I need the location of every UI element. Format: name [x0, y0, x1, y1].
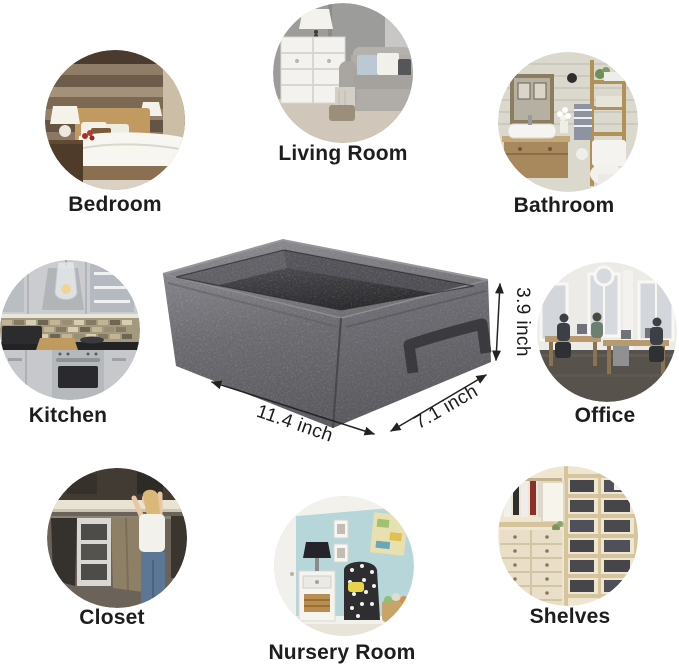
nursery-room-photo	[274, 496, 414, 636]
pendant-light-icon	[55, 260, 77, 300]
round-window-icon	[595, 267, 613, 285]
nightstand-icon	[299, 571, 335, 621]
toaster-oven-icon	[2, 326, 42, 344]
toy-basket-icon	[382, 593, 410, 622]
coat-icon	[51, 518, 77, 586]
cutting-board-icon	[36, 338, 78, 350]
closet-shelf-icon	[47, 500, 187, 509]
nursery-room-scene-icon	[274, 496, 414, 636]
dimension-annotations: 11.4 inch 7.1 inch 3.9 inch	[212, 284, 533, 447]
door-icon	[274, 506, 296, 636]
bedroom-photo	[45, 50, 185, 190]
living-room-label: Living Room	[253, 142, 433, 166]
shelves-photo	[498, 466, 638, 606]
basket-handle	[409, 324, 486, 373]
polka-dot-chair-icon	[344, 562, 380, 620]
product-infographic: Bedroom	[0, 0, 679, 670]
office-photo	[537, 262, 677, 402]
pan-icon	[80, 337, 104, 344]
wall-art-icon	[370, 512, 408, 555]
shelves-scene-icon	[498, 466, 638, 606]
office-scene-icon	[537, 262, 677, 402]
wall-hook-icon	[567, 73, 577, 83]
height-dimension-label: 3.9 inch	[512, 287, 533, 357]
toilet-paper-icon	[576, 148, 588, 160]
bathroom-scene-icon	[498, 52, 638, 192]
living-room-scene-icon	[273, 3, 413, 143]
length-dimension-label: 11.4 inch	[254, 401, 336, 447]
bathroom-label: Bathroom	[474, 194, 654, 218]
closet-scene-icon	[47, 468, 187, 608]
kitchen-label: Kitchen	[0, 404, 158, 428]
drawers-icon	[500, 530, 562, 606]
hanging-organizer-icon	[77, 518, 111, 586]
kitchen-photo	[0, 260, 140, 400]
living-room-photo	[273, 3, 413, 143]
nursery-room-label: Nursery Room	[252, 641, 432, 665]
closet-photo	[47, 468, 187, 608]
stove-icon	[0, 350, 140, 400]
kitchen-scene-icon	[0, 260, 140, 400]
width-dimension-label: 7.1 inch	[411, 381, 482, 434]
height-arrow	[496, 284, 500, 360]
bedroom-scene-icon	[45, 50, 185, 190]
shelf-unit-icon	[564, 466, 638, 606]
closet-label: Closet	[22, 606, 202, 630]
towel-icon	[574, 104, 592, 140]
mirror-icon	[542, 482, 564, 522]
office-label: Office	[515, 404, 679, 428]
width-arrow	[391, 375, 486, 431]
length-arrow	[212, 382, 374, 434]
bathroom-photo	[498, 52, 638, 192]
basket-body	[163, 240, 491, 428]
shelves-label: Shelves	[480, 605, 660, 629]
bedroom-label: Bedroom	[25, 193, 205, 217]
